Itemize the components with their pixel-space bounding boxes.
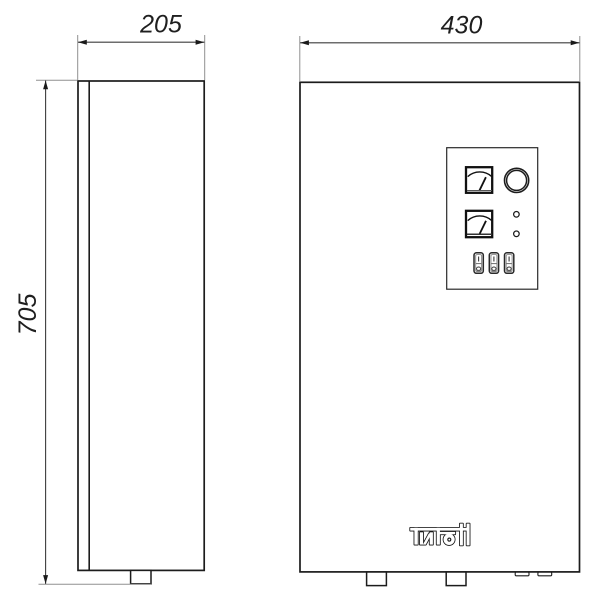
svg-text:430: 430	[441, 12, 483, 40]
svg-text:705: 705	[14, 294, 42, 336]
svg-text:205: 205	[139, 10, 182, 38]
